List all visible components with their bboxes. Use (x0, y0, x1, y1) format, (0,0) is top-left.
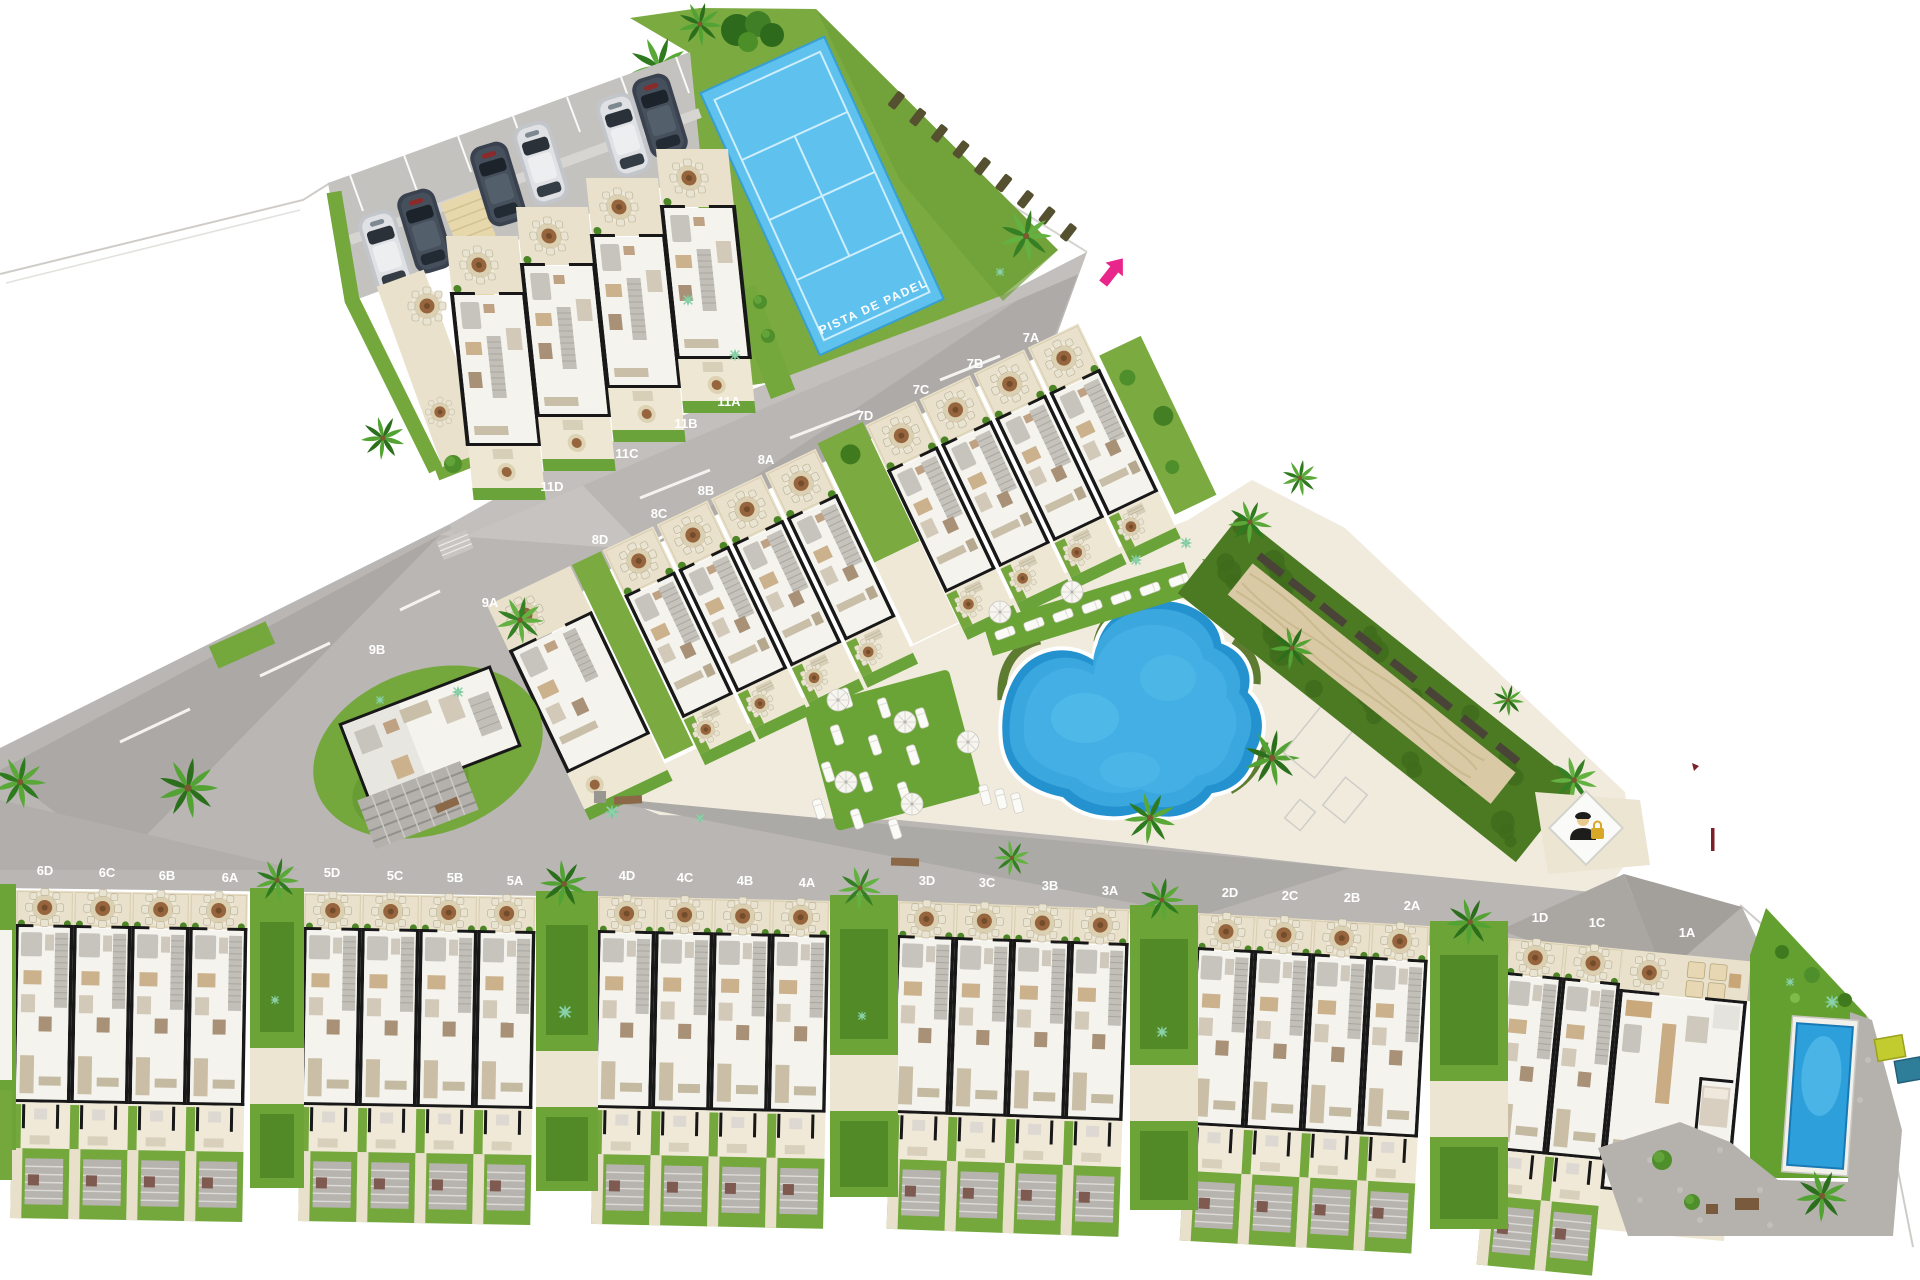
svg-text:2D: 2D (1222, 885, 1239, 900)
svg-text:8B: 8B (698, 483, 715, 498)
svg-text:5C: 5C (387, 868, 404, 883)
svg-text:1C: 1C (1589, 915, 1606, 930)
svg-text:3D: 3D (919, 873, 936, 888)
svg-text:6B: 6B (159, 868, 176, 883)
svg-text:6C: 6C (99, 865, 116, 880)
svg-text:7C: 7C (913, 382, 930, 397)
svg-text:8C: 8C (651, 506, 668, 521)
svg-text:11D: 11D (540, 479, 563, 494)
svg-text:2B: 2B (1344, 890, 1361, 905)
svg-text:9A: 9A (482, 595, 499, 610)
svg-text:11B: 11B (674, 416, 697, 431)
svg-text:4C: 4C (677, 870, 694, 885)
svg-text:3B: 3B (1042, 878, 1059, 893)
svg-text:4B: 4B (737, 873, 754, 888)
svg-text:11C: 11C (615, 446, 639, 461)
svg-text:5B: 5B (447, 870, 464, 885)
svg-text:4A: 4A (799, 875, 816, 890)
svg-text:3A: 3A (1102, 883, 1119, 898)
svg-text:6D: 6D (37, 863, 54, 878)
svg-text:7A: 7A (1023, 330, 1040, 345)
svg-text:4D: 4D (619, 868, 636, 883)
svg-text:7D: 7D (857, 408, 874, 423)
svg-text:9B: 9B (369, 642, 386, 657)
svg-text:1A: 1A (1679, 925, 1696, 940)
svg-text:3C: 3C (979, 875, 996, 890)
svg-text:11A: 11A (717, 394, 741, 409)
svg-text:6A: 6A (222, 870, 239, 885)
svg-text:7B: 7B (967, 356, 984, 371)
svg-text:8D: 8D (592, 532, 609, 547)
svg-text:2A: 2A (1404, 898, 1421, 913)
svg-text:2C: 2C (1282, 888, 1299, 903)
svg-text:8A: 8A (758, 452, 775, 467)
svg-text:5A: 5A (507, 873, 524, 888)
svg-text:1D: 1D (1532, 910, 1549, 925)
svg-text:5D: 5D (324, 865, 341, 880)
